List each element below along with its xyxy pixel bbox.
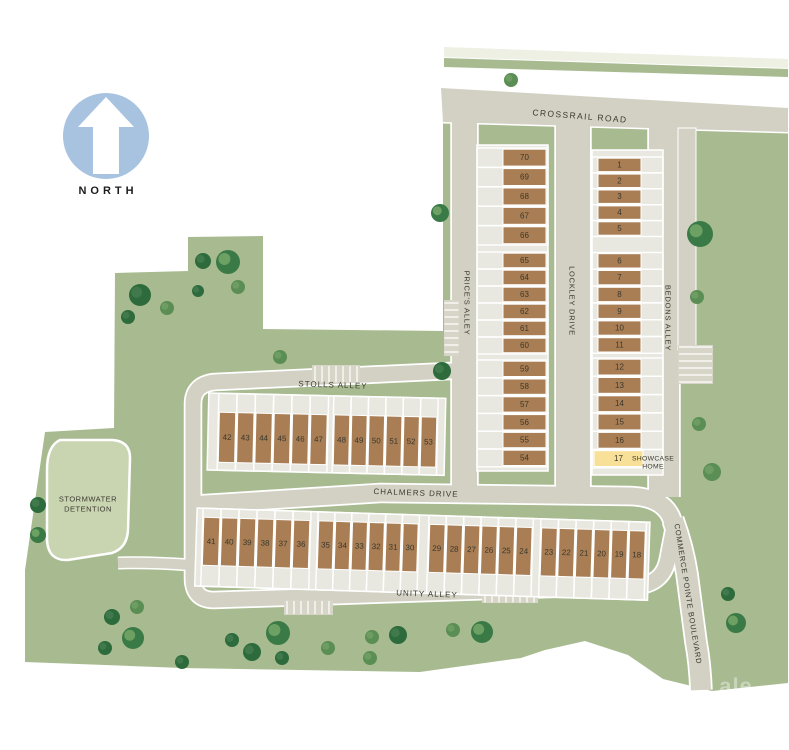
tree-highlight xyxy=(366,632,373,639)
lot-number-52: 52 xyxy=(407,437,417,446)
lot-number-32: 32 xyxy=(372,542,382,551)
street-label-bedons-alley: BEDONS ALLEY xyxy=(664,285,673,351)
tree-highlight xyxy=(473,624,484,635)
lot-number-21: 21 xyxy=(579,549,589,558)
tree-highlight xyxy=(161,303,168,310)
lot-number-62: 62 xyxy=(520,307,529,316)
lot-number-6: 6 xyxy=(617,256,622,265)
tree-highlight xyxy=(690,224,703,237)
tree-highlight xyxy=(505,75,512,82)
lot-number-16: 16 xyxy=(615,436,624,445)
lot-number-54: 54 xyxy=(520,453,529,462)
lot-number-7: 7 xyxy=(617,273,622,282)
tree-highlight xyxy=(124,630,135,641)
tree-highlight xyxy=(447,625,454,632)
west-road-stub xyxy=(118,563,190,565)
street-label-prices-alley: PRICE'S ALLEY xyxy=(463,271,472,336)
lot-number-13: 13 xyxy=(615,381,624,390)
north-label: NORTH xyxy=(78,185,137,197)
tree-highlight xyxy=(391,628,400,637)
lot-number-50: 50 xyxy=(372,436,382,445)
lot-number-63: 63 xyxy=(520,290,529,299)
lot-number-69: 69 xyxy=(520,173,529,182)
lot-number-59: 59 xyxy=(520,364,529,373)
tree-highlight xyxy=(276,653,283,660)
watermark: ale xyxy=(719,674,753,699)
tree-highlight xyxy=(193,287,199,293)
tree-highlight xyxy=(705,465,714,474)
lot-number-39: 39 xyxy=(243,538,253,547)
lot-number-15: 15 xyxy=(615,418,624,427)
stormwater-label-line2: DETENTION xyxy=(64,505,112,514)
tree-highlight xyxy=(218,253,230,265)
lot-number-47: 47 xyxy=(314,435,324,444)
lot-number-23: 23 xyxy=(544,547,554,556)
lot-number-31: 31 xyxy=(388,543,398,552)
site-plan-canvas: 7069686766656463626160595857565554123456… xyxy=(0,0,789,750)
lot-number-27: 27 xyxy=(467,545,477,554)
tree-highlight xyxy=(322,643,329,650)
tree-highlight xyxy=(274,352,281,359)
lot-number-67: 67 xyxy=(520,211,529,220)
street-label-lockley-drive: LOCKLEY DRIVE xyxy=(568,266,577,336)
lot-number-66: 66 xyxy=(520,231,529,240)
showcase-home-label-line1: SHOWCASE xyxy=(632,456,674,463)
lot-number-43: 43 xyxy=(241,433,251,442)
tree-highlight xyxy=(691,292,698,299)
lot-number-17: 17 xyxy=(614,454,623,463)
prices-parking-pad xyxy=(444,300,459,356)
bedons-parking-pad xyxy=(678,345,713,384)
tree-highlight xyxy=(722,589,729,596)
lot-number-1: 1 xyxy=(617,160,622,169)
lot-number-42: 42 xyxy=(222,433,232,442)
tree-highlight xyxy=(433,206,442,215)
lot-number-49: 49 xyxy=(354,436,364,445)
lot-number-3: 3 xyxy=(617,192,622,201)
lot-number-55: 55 xyxy=(520,436,529,445)
showcase-home-label-line2: HOME xyxy=(642,464,664,471)
lot-number-45: 45 xyxy=(277,434,287,443)
tree-highlight xyxy=(268,624,280,636)
lot-number-35: 35 xyxy=(321,540,331,549)
tree-highlight xyxy=(106,611,114,619)
lot-number-64: 64 xyxy=(520,273,529,282)
lot-number-11: 11 xyxy=(615,340,624,349)
site-plan: 7069686766656463626160595857565554123456… xyxy=(0,0,789,750)
lot-number-51: 51 xyxy=(389,437,399,446)
tree-highlight xyxy=(364,653,371,660)
tree-highlight xyxy=(122,312,129,319)
lot-number-24: 24 xyxy=(519,547,529,556)
lot-number-30: 30 xyxy=(405,543,415,552)
lot-number-29: 29 xyxy=(432,544,442,553)
lot-number-44: 44 xyxy=(259,434,269,443)
lot-number-20: 20 xyxy=(597,549,607,558)
lot-number-28: 28 xyxy=(450,544,460,553)
tree-highlight xyxy=(32,499,40,507)
lot-number-68: 68 xyxy=(520,192,529,201)
lot-number-58: 58 xyxy=(520,382,529,391)
lot-number-25: 25 xyxy=(502,546,512,555)
lot-number-57: 57 xyxy=(520,400,529,409)
tree-highlight xyxy=(176,657,183,664)
lot-number-19: 19 xyxy=(615,550,625,559)
lot-number-5: 5 xyxy=(617,224,622,233)
lot-number-70: 70 xyxy=(520,153,529,162)
tree-highlight xyxy=(99,643,106,650)
tree-highlight xyxy=(728,616,738,626)
lot-number-61: 61 xyxy=(520,324,529,333)
tree-highlight xyxy=(435,364,444,373)
tree-highlight xyxy=(131,287,142,298)
tree-highlight xyxy=(32,529,40,537)
lot-number-22: 22 xyxy=(562,548,572,557)
lot-number-14: 14 xyxy=(615,399,624,408)
lot-number-48: 48 xyxy=(337,435,347,444)
lot-number-9: 9 xyxy=(617,307,622,316)
tree-highlight xyxy=(245,645,254,654)
lot-number-33: 33 xyxy=(355,541,365,550)
tree-highlight xyxy=(693,419,700,426)
lot-number-36: 36 xyxy=(296,540,306,549)
stolls-row: 424344454647484950515253 xyxy=(207,393,446,475)
lot-number-4: 4 xyxy=(617,208,622,217)
lot-number-34: 34 xyxy=(338,541,348,550)
lot-number-60: 60 xyxy=(520,341,529,350)
lot-number-2: 2 xyxy=(617,176,622,185)
tree-highlight xyxy=(131,602,138,609)
lot-number-12: 12 xyxy=(615,363,624,372)
lot-number-38: 38 xyxy=(260,539,270,548)
lot-number-8: 8 xyxy=(617,290,622,299)
lot-number-46: 46 xyxy=(296,434,306,443)
lot-number-40: 40 xyxy=(225,537,235,546)
lot-number-18: 18 xyxy=(632,550,642,559)
lot-number-65: 65 xyxy=(520,256,529,265)
lot-number-53: 53 xyxy=(424,437,434,446)
chalmers-row: 4140393837363534333231302928272625242322… xyxy=(195,508,650,600)
lot-number-10: 10 xyxy=(615,324,624,333)
lot-number-26: 26 xyxy=(484,546,494,555)
stormwater-label-line1: STORMWATER xyxy=(59,495,117,504)
lot-number-56: 56 xyxy=(520,418,529,427)
lot-number-41: 41 xyxy=(207,537,217,546)
tree-highlight xyxy=(197,255,205,263)
lot-number-37: 37 xyxy=(278,539,288,548)
tree-highlight xyxy=(232,282,239,289)
tree-highlight xyxy=(226,635,233,642)
